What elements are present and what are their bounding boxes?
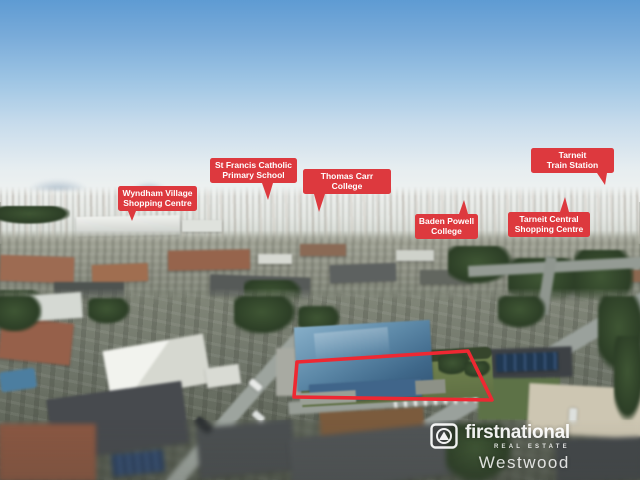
label-pointer <box>314 194 325 212</box>
label-text: Baden Powell <box>418 216 475 226</box>
label-pointer <box>128 211 136 221</box>
label-text: Tarneit <box>534 150 611 160</box>
office-name: Westwood <box>479 453 570 473</box>
label-pointer <box>560 197 569 212</box>
aerial-photo: Wyndham Village Shopping Centre St Franc… <box>0 0 640 480</box>
brand-name: firstnational <box>465 423 570 442</box>
location-label-wyndham-village-shopping-centre: Wyndham Village Shopping Centre <box>118 186 197 211</box>
label-text: Shopping Centre <box>121 198 194 208</box>
location-label-thomas-carr-college: Thomas Carr College <box>303 169 391 194</box>
agency-logo: firstnational REAL ESTATE Westwood <box>430 423 570 473</box>
label-text: Tarneit Central <box>511 214 587 224</box>
label-pointer <box>459 200 468 214</box>
location-label-baden-powell-college: Baden Powell College <box>415 214 478 239</box>
property-boundary-outline <box>294 351 492 400</box>
property-boundary <box>0 0 640 480</box>
label-text: Primary School <box>213 170 294 180</box>
label-pointer <box>262 183 273 200</box>
label-text: St Francis Catholic <box>213 160 294 170</box>
brand-tagline: REAL ESTATE <box>494 444 570 450</box>
location-label-tarneit-central-shopping-centre: Tarneit Central Shopping Centre <box>508 212 590 237</box>
label-text: Shopping Centre <box>511 224 587 234</box>
label-pointer <box>597 173 607 185</box>
label-text: College <box>418 226 475 236</box>
label-text: Thomas Carr <box>306 171 388 181</box>
label-text: Wyndham Village <box>121 188 194 198</box>
first-national-logo-icon <box>430 423 458 449</box>
label-text: College <box>306 181 388 191</box>
location-label-tarneit-train-station: Tarneit Train Station <box>531 148 614 173</box>
label-text: Train Station <box>534 160 611 170</box>
location-label-st-francis-catholic-primary-school: St Francis Catholic Primary School <box>210 158 297 183</box>
